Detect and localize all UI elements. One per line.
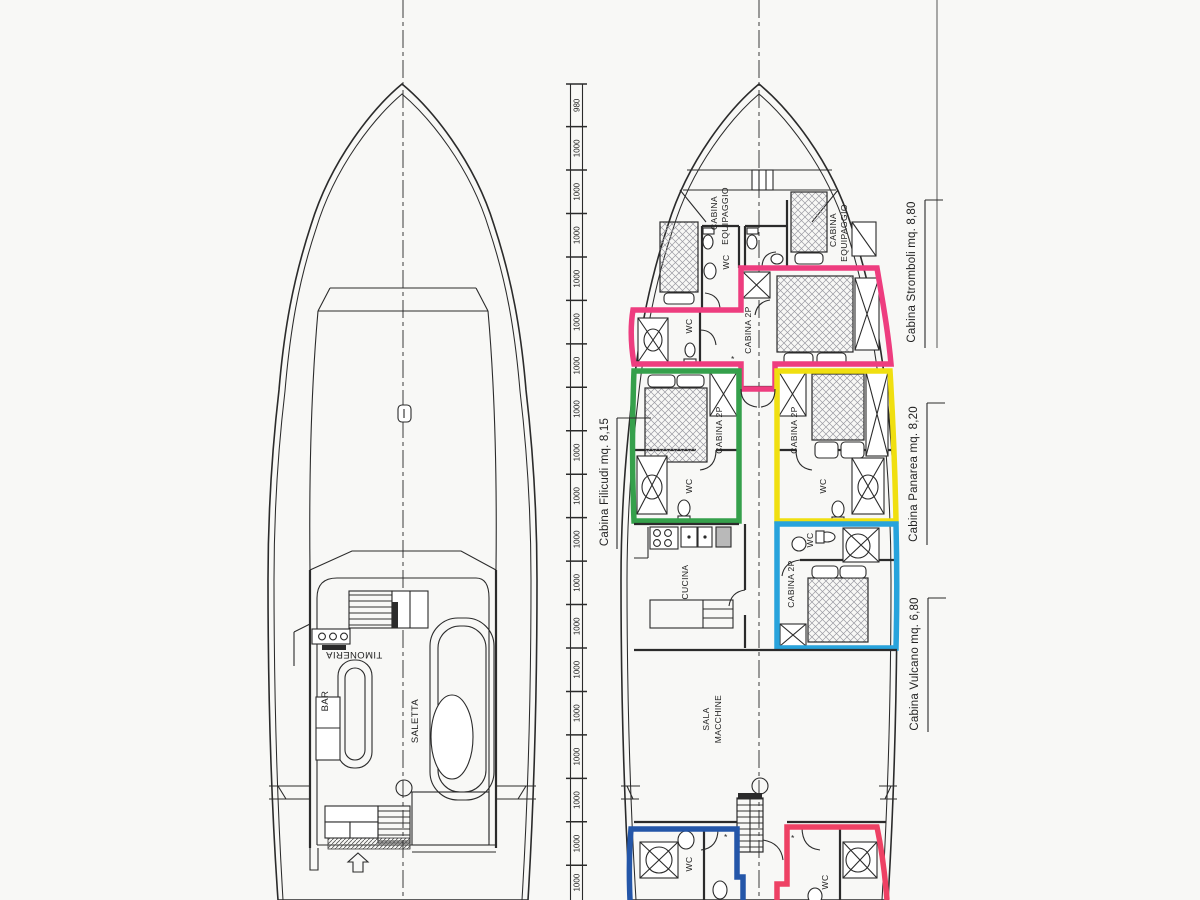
port-side-door xyxy=(294,624,310,666)
wheelhouse-stairs xyxy=(349,591,428,628)
roof-hatch xyxy=(398,405,411,422)
ruler-label: 980 xyxy=(573,98,582,112)
annotation-filicudi: Cabina Filicudi mq. 8,15 xyxy=(599,418,611,546)
companionway-arrow xyxy=(348,853,368,872)
cabin-panarea: CABINA 2P WC xyxy=(777,371,896,522)
ruler-label: 1000 xyxy=(573,443,582,461)
label-stromboli-cabina2p: CABINA 2P xyxy=(743,306,753,354)
filicudi-bed xyxy=(645,388,707,462)
stern-cabin-port: WC * xyxy=(629,829,743,900)
ruler-label: 1000 xyxy=(573,486,582,504)
stern-cabin-starboard: WC * xyxy=(777,827,887,900)
ruler-label: 1000 xyxy=(573,269,582,287)
label-stromboli-wc: WC xyxy=(684,319,694,334)
panarea-bed xyxy=(812,374,864,440)
ruler-label: 1000 xyxy=(573,226,582,244)
annotation-stromboli: Cabina Stromboli mq. 8,80 xyxy=(906,201,918,342)
saletta-table xyxy=(431,695,473,779)
cabin-filicudi: CABINA 2P WC xyxy=(633,371,740,521)
vulcano-underline xyxy=(928,598,946,732)
ruler-label: 1000 xyxy=(573,573,582,591)
ruler-label: 1000 xyxy=(573,400,582,418)
ruler-label: 1000 xyxy=(573,356,582,374)
galley-cucina: CUCINA xyxy=(634,524,745,648)
vulcano-bed xyxy=(808,578,868,642)
ruler-label: 1000 xyxy=(573,873,582,891)
ruler-label: 1000 xyxy=(573,704,582,722)
label-timoneria: TIMONERIA xyxy=(326,649,383,660)
label-vulcano-cabina2p: CABINA 2P xyxy=(786,560,796,608)
label-crew-cabin-stbd-1: CABINA xyxy=(828,213,838,247)
label-macchine: MACCHINE xyxy=(713,695,723,744)
label-crew-cabin-stbd-2: EQUIPAGGIO xyxy=(839,204,849,262)
helm-console xyxy=(312,629,350,650)
crew-bed-starboard xyxy=(791,192,827,252)
label-crew-cabin-port-2: EQUIPAGGIO xyxy=(720,187,730,245)
deck-fitting-circle xyxy=(396,780,412,796)
label-bar: BAR xyxy=(320,691,331,712)
label-vulcano-wc: WC xyxy=(805,533,815,548)
label-filicudi-wc: WC xyxy=(684,479,694,494)
label-sala: SALA xyxy=(701,707,711,730)
panarea-underline xyxy=(927,403,945,545)
ruler-label: 1000 xyxy=(573,530,582,548)
ruler-label: 1000 xyxy=(573,313,582,331)
door-mark-3: * xyxy=(791,833,795,843)
ruler-label: 1000 xyxy=(573,747,582,765)
label-cucina: CUCINA xyxy=(680,565,690,600)
label-saletta: SALETTA xyxy=(410,699,421,744)
label-filicudi-cabina2p: CABINA 2P xyxy=(714,406,724,454)
bar-counter xyxy=(316,660,372,768)
ruler-label: 1000 xyxy=(573,660,582,678)
ruler-label: 1000 xyxy=(573,791,582,809)
deck-plan-drawing: TIMONERIA BAR SALETTA 980100010001000100… xyxy=(0,0,1200,900)
annotation-panarea: Cabina Panarea mq. 8,20 xyxy=(908,406,920,542)
cabin-vulcano: WC CABINA 2P xyxy=(777,524,897,648)
upper-deck-plan: TIMONERIA BAR SALETTA xyxy=(268,0,537,900)
ruler-label: 1000 xyxy=(573,182,582,200)
scale-ruler: 9801000100010001000100010001000100010001… xyxy=(566,84,587,900)
stromboli-bed xyxy=(777,276,853,352)
stromboli-underline xyxy=(925,200,943,348)
label-panarea-cabina2p: CABINA 2P xyxy=(789,406,799,454)
label-stern-stbd-wc: WC xyxy=(820,875,830,890)
ruler-ticks-and-labels: 9801000100010001000100010001000100010001… xyxy=(566,84,587,892)
lower-deck-plan: CABINA EQUIPAGGIO CABINA EQUIPAGGIO WC W… xyxy=(621,0,897,900)
ruler-label: 1000 xyxy=(573,617,582,635)
crew-bed-port xyxy=(660,222,698,292)
label-crew-cabin-port-1: CABINA xyxy=(709,196,719,230)
label-crew-wc: WC xyxy=(721,255,731,270)
yacht-deck-plan-sheet: TIMONERIA BAR SALETTA 980100010001000100… xyxy=(0,0,1200,900)
ruler-label: 1000 xyxy=(573,139,582,157)
label-panarea-wc: WC xyxy=(818,479,828,494)
label-stern-port-wc: WC xyxy=(684,857,694,872)
ruler-label: 1000 xyxy=(573,834,582,852)
annotation-vulcano: Cabina Vulcano mq. 6,80 xyxy=(909,597,921,730)
door-mark-2: * xyxy=(724,832,728,842)
